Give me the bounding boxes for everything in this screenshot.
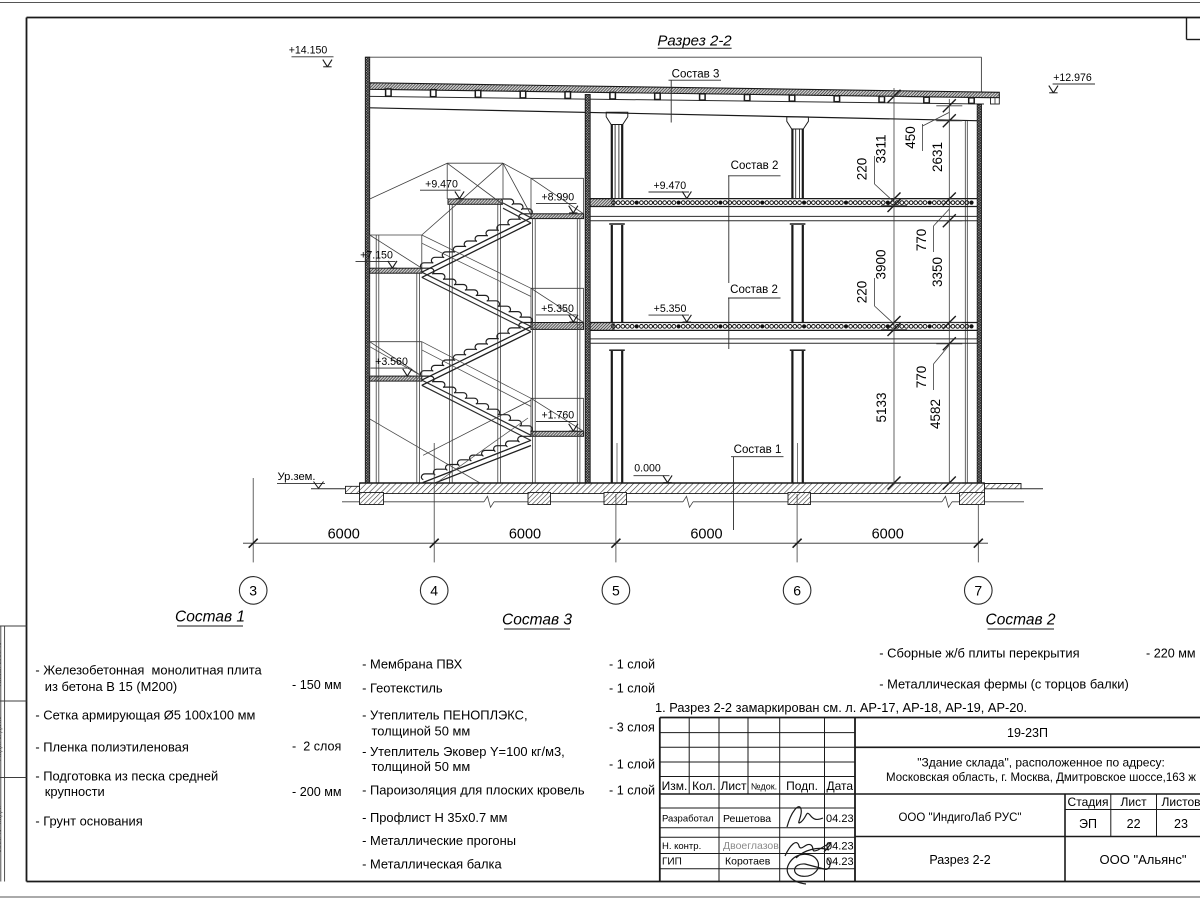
svg-text:Листов: Листов [1162,795,1200,809]
svg-text:Разрез 2-2: Разрез 2-2 [657,33,732,50]
svg-text:770: 770 [914,366,929,389]
svg-text:- 3 слоя: - 3 слоя [609,721,655,735]
svg-text:Н. контр.: Н. контр. [662,841,701,852]
svg-text:Кол.: Кол. [692,779,716,793]
svg-text:ООО "Альянс": ООО "Альянс" [1100,852,1187,867]
svg-text:крупности: крупности [45,784,105,799]
svg-text:Состав 1: Состав 1 [175,609,245,626]
svg-text:+14.150: +14.150 [289,45,328,57]
svg-text:Подп. и дата: Подп. и дата [0,716,3,761]
svg-text:+5.350: +5.350 [541,303,574,315]
svg-text:ООО "ИндигоЛаб РУС": ООО "ИндигоЛаб РУС" [898,812,1021,824]
svg-text:- 1 слой: - 1 слой [609,658,655,672]
svg-text:толщиной 50 мм: толщиной 50 мм [372,724,471,739]
svg-text:+8.990: +8.990 [541,191,574,203]
svg-text:- Пароизоляция для плоских кро: - Пароизоляция для плоских кровель [362,783,585,798]
svg-text:6: 6 [793,582,801,598]
svg-text:Коротаев: Коротаев [725,856,771,868]
svg-text:5: 5 [612,582,620,598]
svg-text:Двоеглазов: Двоеглазов [723,840,779,852]
svg-text:7: 7 [974,582,982,598]
svg-text:3900: 3900 [874,249,889,279]
svg-text:Решетова: Решетова [723,813,771,825]
svg-text:ГИП: ГИП [662,857,682,868]
svg-text:Изм.: Изм. [662,779,688,793]
svg-text:- Профлист Н 35х0.7 мм: - Профлист Н 35х0.7 мм [362,810,507,825]
svg-text:+5.350: +5.350 [654,303,687,315]
svg-text:23: 23 [1174,817,1188,831]
svg-text:"Здание склада", расположенное: "Здание склада", расположенное по адресу… [917,756,1165,770]
svg-text:- Металлические прогоны: - Металлические прогоны [362,833,516,848]
svg-text:6000: 6000 [690,527,722,543]
svg-text:- Металлическая фермы (с торцо: - Металлическая фермы (с торцов балки) [879,677,1128,692]
svg-text:5133: 5133 [874,392,889,422]
svg-text:- 200 мм: - 200 мм [292,785,342,799]
svg-text:- Сетка армирующая Ø5 100х100: - Сетка армирующая Ø5 100х100 мм [35,708,255,723]
svg-text:Состав 1: Состав 1 [734,444,782,456]
svg-text:- Утеплитель ПЕНОПЛЭКС,: - Утеплитель ПЕНОПЛЭКС, [362,708,527,723]
svg-text:+9.470: +9.470 [653,180,686,192]
svg-text:220: 220 [855,158,870,181]
svg-text:22: 22 [1127,817,1141,831]
svg-text:4582: 4582 [928,399,943,429]
svg-text:04.23: 04.23 [826,813,854,825]
svg-text:- 1 слой: - 1 слой [609,682,655,696]
svg-text:6000: 6000 [509,527,541,543]
svg-text:- Грунт основания: - Грунт основания [35,814,142,829]
svg-text:+12.976: +12.976 [1053,72,1092,84]
svg-text:Состав 2: Состав 2 [986,612,1056,629]
svg-text:№док.: №док. [751,782,777,792]
svg-text:3350: 3350 [930,257,945,287]
svg-text:- Сборные ж/б плиты перекрытия: - Сборные ж/б плиты перекрытия [879,646,1079,661]
svg-text:0.000: 0.000 [634,463,661,475]
svg-text:Состав 3: Состав 3 [502,612,572,629]
svg-text:Инв. № подл.: Инв. № подл. [0,806,3,853]
svg-text:19-23П: 19-23П [1007,726,1048,740]
svg-text:- Металлическая балка: - Металлическая балка [362,857,502,872]
svg-text:Разработал: Разработал [662,814,714,825]
svg-text:6000: 6000 [872,527,904,543]
svg-text:ЭП: ЭП [1079,817,1097,831]
svg-text:- 220 мм: - 220 мм [1146,647,1196,661]
svg-text:из бетона В 15 (М200): из бетона В 15 (М200) [45,679,177,694]
svg-text:Стадия: Стадия [1068,795,1109,809]
svg-text:- Подготовка из песка средней: - Подготовка из песка средней [35,769,218,784]
svg-text:- Железобетонная монолитная п: - Железобетонная монолитная плита [35,663,262,678]
svg-text:220: 220 [855,281,870,304]
svg-text:1. Разрез 2-2 замаркирован см.: 1. Разрез 2-2 замаркирован см. л. АР-17,… [655,700,1027,715]
svg-text:Ур.зем.: Ур.зем. [278,471,316,483]
svg-text:3: 3 [249,582,257,598]
svg-text:450: 450 [903,126,918,149]
svg-text:Московская область, г. Москва,: Московская область, г. Москва, Дмитровск… [886,772,1196,784]
svg-text:Лист: Лист [1121,795,1148,809]
svg-text:толщиной 50 мм: толщиной 50 мм [372,759,471,774]
svg-text:+7.150: +7.150 [360,250,393,262]
svg-text:+1.760: +1.760 [541,410,574,422]
svg-text:Состав 2: Состав 2 [731,160,779,172]
svg-text:- 150 мм: - 150 мм [292,678,342,692]
svg-text:+3.560: +3.560 [375,356,408,368]
svg-text:- Пленка полиэтиленовая: - Пленка полиэтиленовая [35,740,188,755]
svg-text:Лист: Лист [720,779,747,793]
svg-text:Разрез 2-2: Разрез 2-2 [929,853,990,867]
svg-text:Состав 3: Состав 3 [672,69,720,81]
svg-text:770: 770 [914,229,929,252]
svg-text:2631: 2631 [930,142,945,172]
svg-text:- Утеплитель Эковер Y=100 кг/м: - Утеплитель Эковер Y=100 кг/м3, [362,744,565,759]
svg-text:6000: 6000 [328,527,360,543]
svg-text:Подп.: Подп. [786,779,818,793]
svg-text:- Геотекстиль: - Геотекстиль [362,681,443,696]
svg-text:+9.470: +9.470 [425,178,458,190]
svg-text:- 1 слой: - 1 слой [609,758,655,772]
svg-text:- 2 слоя: - 2 слоя [292,740,341,754]
svg-text:4: 4 [430,582,438,598]
svg-text:Дата: Дата [827,779,854,793]
svg-text:3311: 3311 [874,134,889,163]
svg-text:Взам. инв. №: Взам. инв. № [0,640,3,686]
svg-text:- 1 слой: - 1 слой [609,784,655,798]
svg-text:Состав 2: Состав 2 [730,284,778,296]
svg-text:- Мембрана ПВХ: - Мембрана ПВХ [362,657,463,672]
